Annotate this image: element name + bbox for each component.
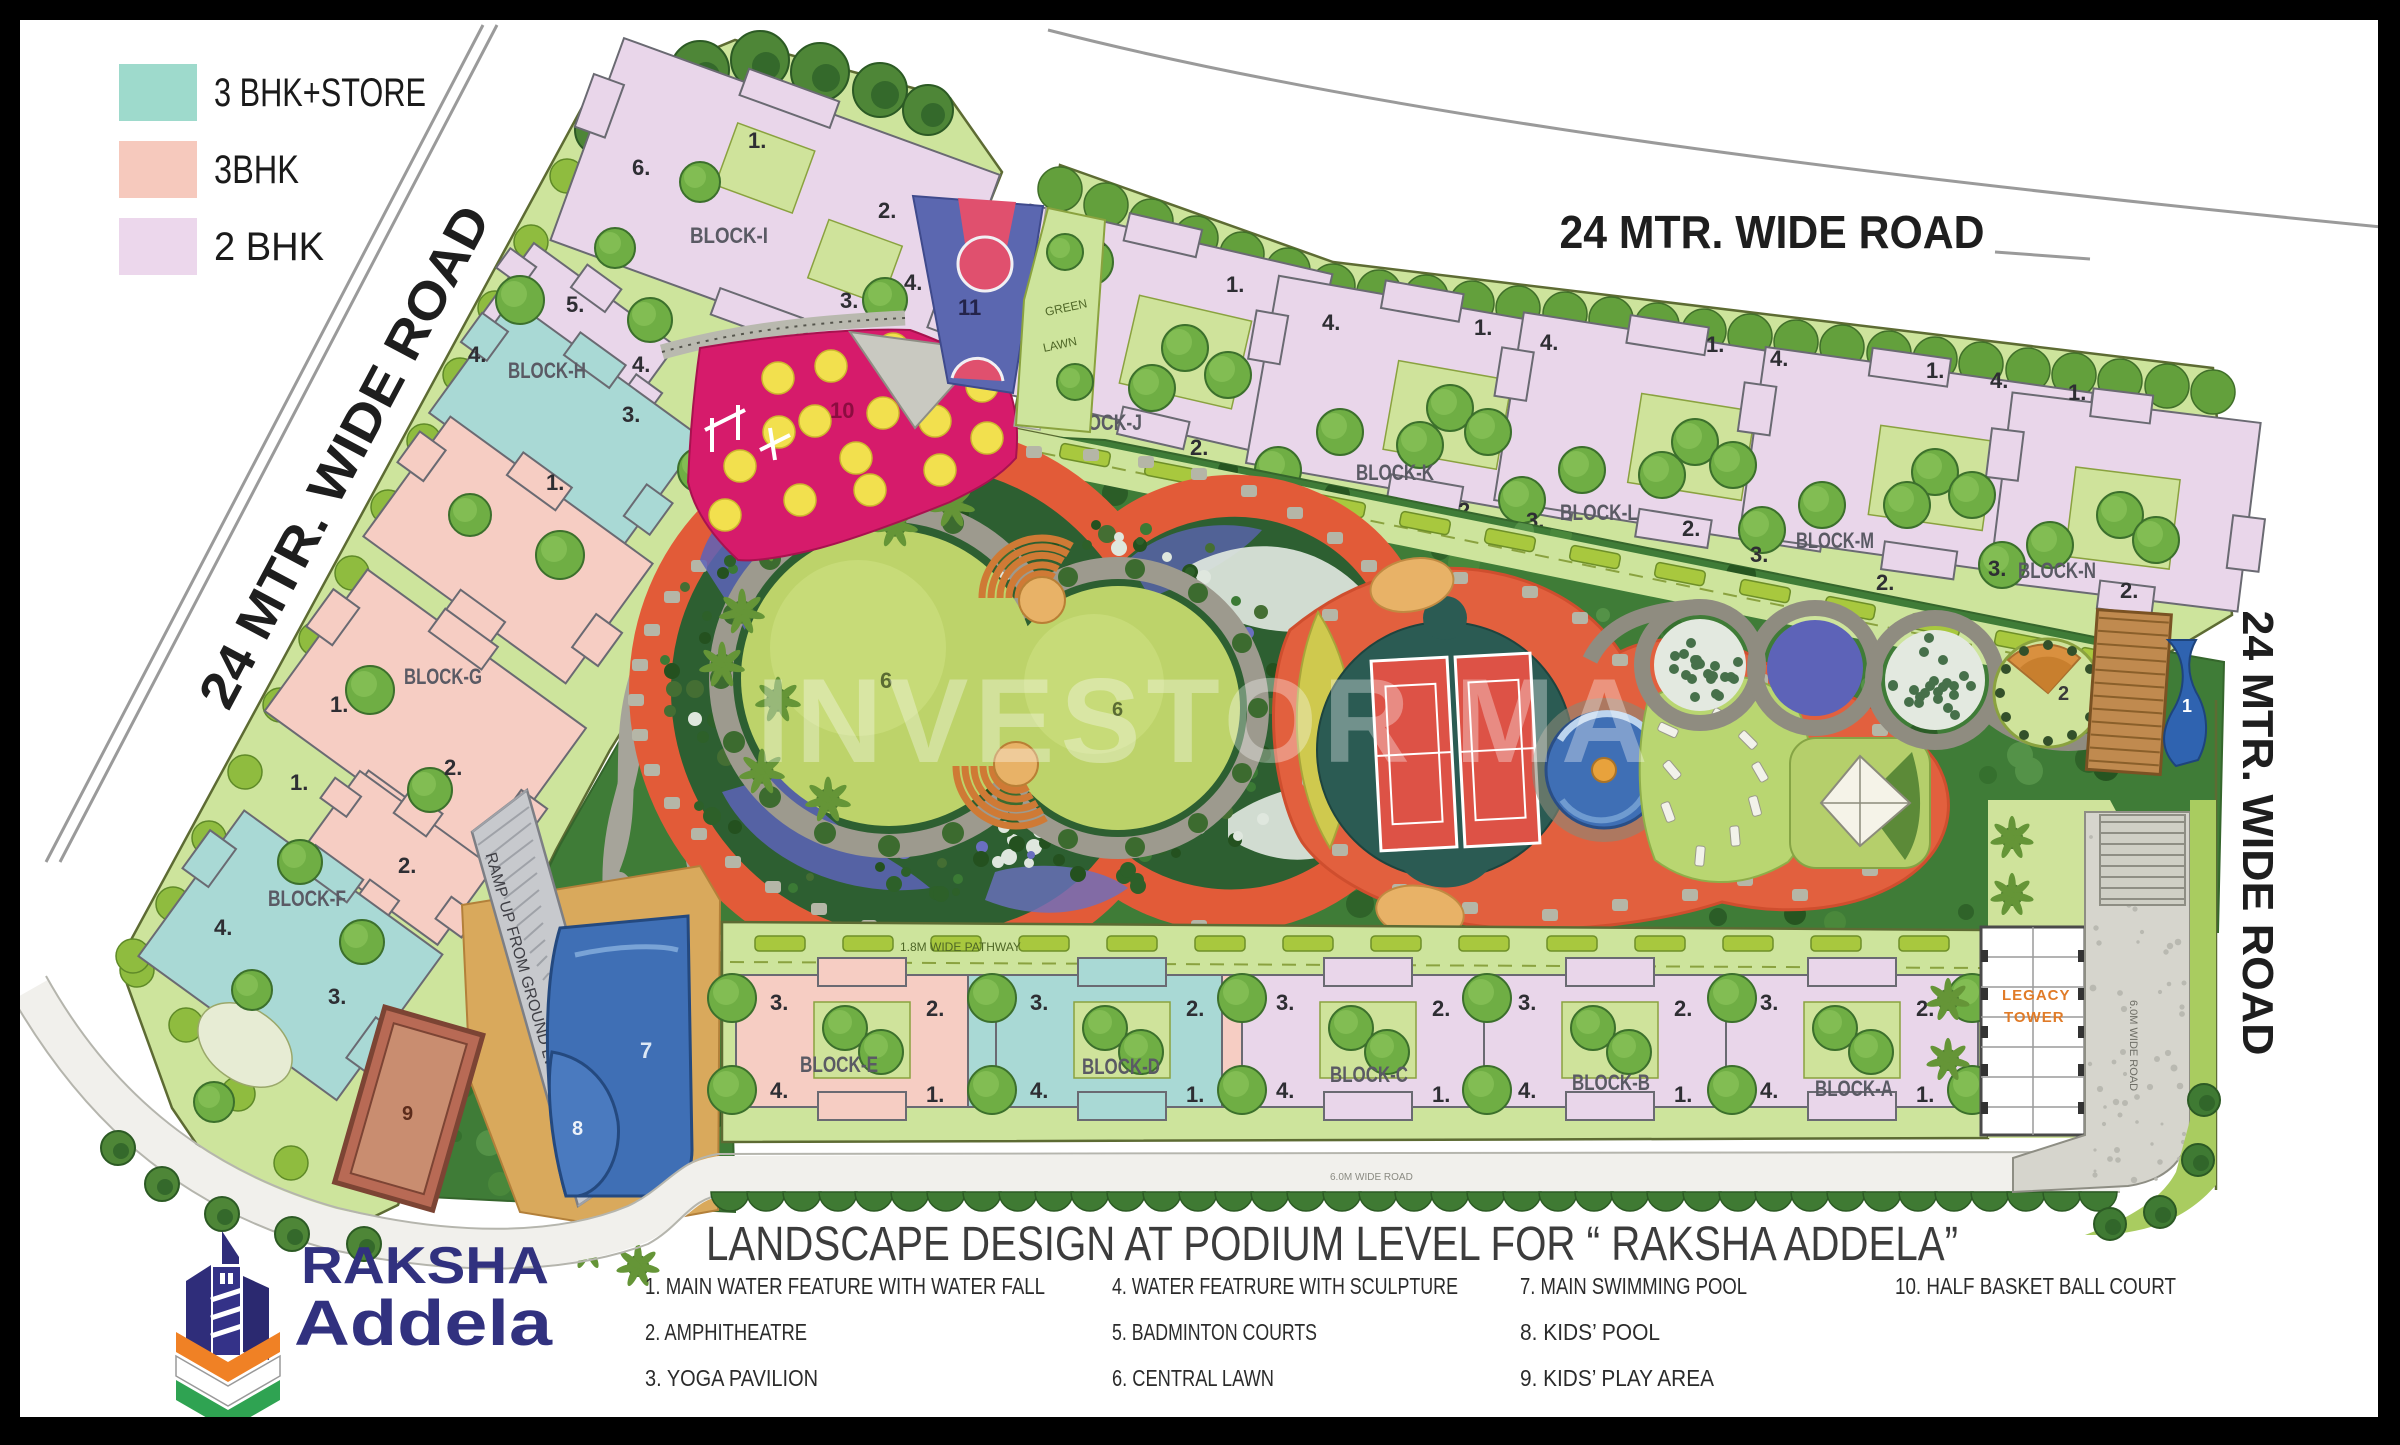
svg-text:1.: 1. xyxy=(546,470,564,495)
svg-text:2.: 2. xyxy=(878,198,896,223)
svg-text:1: 1 xyxy=(2182,696,2192,716)
svg-text:1.: 1. xyxy=(748,128,766,153)
svg-text:1.: 1. xyxy=(1926,358,1944,383)
svg-text:1.: 1. xyxy=(926,1082,944,1107)
svg-text:2.: 2. xyxy=(398,853,416,878)
svg-text:8. KIDS’ POOL: 8. KIDS’ POOL xyxy=(1520,1319,1660,1345)
svg-text:3.: 3. xyxy=(622,402,640,427)
svg-text:4. WATER FEATRURE WITH SCULPTU: 4. WATER FEATRURE WITH SCULPTURE xyxy=(1112,1273,1458,1299)
svg-text:4.: 4. xyxy=(1770,346,1788,371)
svg-text:1.: 1. xyxy=(1432,1082,1450,1107)
svg-text:BLOCK-L: BLOCK-L xyxy=(1560,500,1638,525)
svg-text:2: 2 xyxy=(2058,683,2069,705)
svg-text:1.: 1. xyxy=(1226,272,1244,297)
svg-text:4.: 4. xyxy=(1276,1078,1294,1103)
svg-text:6.0M WIDE ROAD: 6.0M WIDE ROAD xyxy=(1330,1172,1413,1183)
svg-text:Addela: Addela xyxy=(294,1287,552,1359)
svg-text:BLOCK-K: BLOCK-K xyxy=(1356,460,1434,485)
svg-text:1.: 1. xyxy=(290,770,308,795)
svg-text:3 BHK+STORE: 3 BHK+STORE xyxy=(214,71,426,115)
svg-text:1.: 1. xyxy=(1706,332,1724,357)
svg-text:LANDSCAPE DESIGN AT PODIUM LEV: LANDSCAPE DESIGN AT PODIUM LEVEL FOR “ R… xyxy=(706,1218,1958,1271)
svg-text:3.: 3. xyxy=(1760,990,1778,1015)
svg-text:1.: 1. xyxy=(2068,380,2086,405)
svg-text:4.: 4. xyxy=(214,915,232,940)
svg-text:BLOCK-H: BLOCK-H xyxy=(508,358,586,383)
svg-text:1.: 1. xyxy=(1186,1082,1204,1107)
svg-text:3. YOGA PAVILION: 3. YOGA PAVILION xyxy=(645,1365,818,1391)
svg-text:BLOCK-B: BLOCK-B xyxy=(1572,1070,1650,1095)
svg-text:11: 11 xyxy=(958,295,981,320)
svg-text:BLOCK-I: BLOCK-I xyxy=(690,223,768,248)
svg-text:4.: 4. xyxy=(1760,1078,1778,1103)
svg-text:4.: 4. xyxy=(1518,1078,1536,1103)
svg-text:BLOCK-C: BLOCK-C xyxy=(1330,1062,1408,1087)
svg-text:1.: 1. xyxy=(1916,1082,1934,1107)
svg-text:2.: 2. xyxy=(1682,516,1700,541)
svg-text:4.: 4. xyxy=(770,1078,788,1103)
svg-text:1.: 1. xyxy=(1474,315,1492,340)
svg-text:9: 9 xyxy=(402,1103,413,1125)
svg-text:2.: 2. xyxy=(1916,996,1934,1021)
svg-text:3.: 3. xyxy=(1988,556,2006,581)
svg-text:4.: 4. xyxy=(468,342,486,367)
svg-text:24 MTR. WIDE ROAD: 24 MTR. WIDE ROAD xyxy=(1560,206,1985,258)
svg-text:4.: 4. xyxy=(904,270,922,295)
svg-text:2.: 2. xyxy=(1432,996,1450,1021)
svg-text:3.: 3. xyxy=(1030,990,1048,1015)
svg-text:2 BHK: 2 BHK xyxy=(214,225,324,269)
svg-text:3.: 3. xyxy=(840,288,858,313)
svg-text:5. BADMINTON COURTS: 5. BADMINTON COURTS xyxy=(1112,1319,1317,1345)
svg-text:2.: 2. xyxy=(444,755,462,780)
svg-text:10: 10 xyxy=(830,398,854,423)
svg-text:2. AMPHITHEATRE: 2. AMPHITHEATRE xyxy=(645,1319,807,1345)
svg-text:BLOCK-E: BLOCK-E xyxy=(800,1052,878,1077)
svg-text:7. MAIN SWIMMING POOL: 7. MAIN SWIMMING POOL xyxy=(1520,1273,1747,1299)
svg-text:9. KIDS’ PLAY AREA: 9. KIDS’ PLAY AREA xyxy=(1520,1365,1715,1391)
svg-text:BLOCK-A: BLOCK-A xyxy=(1815,1076,1893,1101)
svg-text:3.: 3. xyxy=(328,984,346,1009)
svg-text:2.: 2. xyxy=(1674,996,1692,1021)
svg-text:3.: 3. xyxy=(1276,990,1294,1015)
svg-text:6. CENTRAL LAWN: 6. CENTRAL LAWN xyxy=(1112,1365,1274,1391)
svg-text:3.: 3. xyxy=(1750,542,1768,567)
svg-text:3.: 3. xyxy=(770,990,788,1015)
svg-text:5.: 5. xyxy=(566,292,584,317)
svg-text:BLOCK-M: BLOCK-M xyxy=(1796,528,1874,553)
svg-text:2.: 2. xyxy=(1186,996,1204,1021)
svg-text:BLOCK-N: BLOCK-N xyxy=(2018,558,2096,583)
svg-text:1.: 1. xyxy=(1674,1082,1692,1107)
svg-text:4.: 4. xyxy=(1322,310,1340,335)
svg-text:4.: 4. xyxy=(632,352,650,377)
svg-text:2.: 2. xyxy=(1876,570,1894,595)
svg-text:INVESTOR MA: INVESTOR MA xyxy=(756,654,1653,788)
svg-text:1.: 1. xyxy=(330,692,348,717)
svg-text:BLOCK-D: BLOCK-D xyxy=(1082,1054,1160,1079)
svg-text:LEGACY: LEGACY xyxy=(2002,987,2071,1004)
svg-text:3.: 3. xyxy=(1518,990,1536,1015)
svg-text:6.: 6. xyxy=(632,155,650,180)
svg-text:2.: 2. xyxy=(926,996,944,1021)
svg-text:2.: 2. xyxy=(2120,578,2138,603)
svg-text:3BHK: 3BHK xyxy=(214,148,299,192)
svg-text:BLOCK-F: BLOCK-F xyxy=(268,886,346,911)
svg-text:7: 7 xyxy=(640,1038,652,1063)
svg-text:6.0M WIDE ROAD: 6.0M WIDE ROAD xyxy=(2127,1000,2139,1091)
svg-text:4.: 4. xyxy=(1030,1078,1048,1103)
svg-text:1.8M WIDE PATHWAY: 1.8M WIDE PATHWAY xyxy=(900,940,1021,954)
svg-text:4.: 4. xyxy=(1540,330,1558,355)
svg-text:TOWER: TOWER xyxy=(2004,1009,2065,1026)
svg-text:24 MTR. WIDE ROAD: 24 MTR. WIDE ROAD xyxy=(2233,611,2282,1056)
svg-text:8: 8 xyxy=(572,1118,583,1140)
svg-text:10. HALF BASKET BALL COURT: 10. HALF BASKET BALL COURT xyxy=(1895,1273,2176,1299)
svg-text:1. MAIN WATER FEATURE WITH WAT: 1. MAIN WATER FEATURE WITH WATER FALL xyxy=(645,1273,1045,1299)
svg-text:2.: 2. xyxy=(1190,435,1208,460)
svg-text:BLOCK-G: BLOCK-G xyxy=(404,664,482,689)
svg-text:4.: 4. xyxy=(1990,368,2008,393)
